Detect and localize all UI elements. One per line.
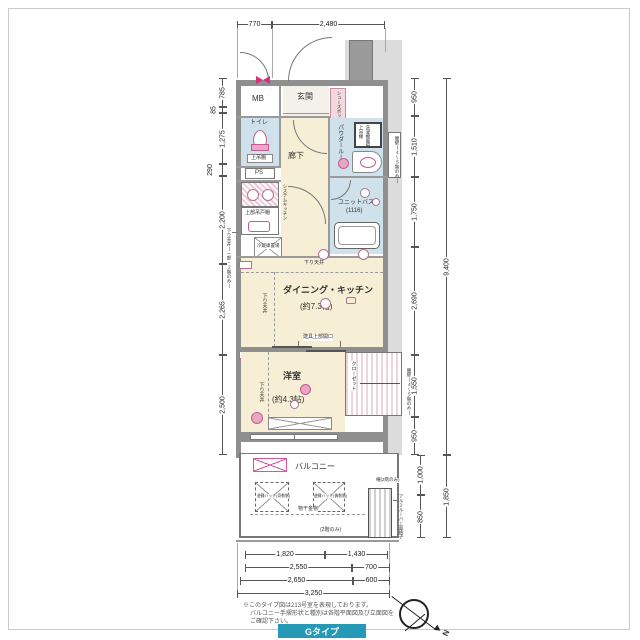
dk-label: ダイニング・キッチン <box>283 286 373 296</box>
dim-bottom-2650: 2,650 <box>240 580 353 581</box>
bath-fixture-icon <box>360 188 370 198</box>
balcony-label: バルコニー <box>295 463 335 472</box>
dim-right-1000: 1,000 <box>420 455 421 495</box>
dim-right-1850: 1,850 <box>446 455 447 538</box>
window-lower-mid <box>294 434 295 440</box>
escape-hatch-left-label: 避難ハッチ(奇数階) <box>257 494 290 498</box>
dim-top-2480: 2,480 <box>272 24 385 25</box>
dim-bottom-2550: 2,550 <box>245 567 352 568</box>
drying-label: 物干金物 <box>298 507 318 513</box>
pillar <box>349 40 373 82</box>
ceiling-light-icon <box>318 249 329 260</box>
room-mb: MB <box>241 86 281 116</box>
wash-basin <box>352 151 382 173</box>
closet: クローゼット <box>345 352 402 416</box>
dim-bottom-600: 600 <box>353 580 390 581</box>
dk-light-icon <box>320 298 331 309</box>
toilet-tank-icon <box>251 144 269 151</box>
dim-right-1550: 1,550 <box>414 355 415 417</box>
washer-label: 洗濯機置場 <box>365 125 370 146</box>
lowered-ceiling-part-note: 下り天井(一部・2階のみ) <box>226 228 231 288</box>
window-counter <box>268 417 332 430</box>
floorplan-canvas: MB 玄関 シューズボックス トイレ 上吊棚 PS 廊下 パウダールーム 上吊棚… <box>0 0 640 640</box>
washer-box: 上吊棚 洗濯機置場 <box>354 122 382 148</box>
dim-top-770: 770 <box>237 24 272 25</box>
room-toilet: トイレ 上吊棚 <box>241 118 279 166</box>
bathtub <box>334 222 380 249</box>
washer-shelf-label: 上吊棚 <box>358 125 363 146</box>
bedroom-fixture-icon <box>290 400 299 409</box>
genkan-label: 玄関 <box>297 93 313 102</box>
waist-wall-note-2: 腰壁(4〜5階のみ) <box>406 368 411 415</box>
ceiling-light-icon <box>358 249 369 260</box>
dim-right-950b: 950 <box>414 417 415 455</box>
room-genkan: 玄関 <box>283 86 329 116</box>
dim-right-2690: 2,690 <box>414 247 415 355</box>
dk-lowered-ceiling-top: 下り天井 <box>304 261 324 267</box>
hall-label: 廊下 <box>288 152 304 161</box>
escape-hatch-right-label: 避難ハッチ(偶数階) <box>314 494 347 498</box>
cupboard-label: 上部吊戸棚 <box>245 211 270 217</box>
escape-hatch-left: 避難ハッチ(奇数階) <box>255 482 289 512</box>
bath-size-label: (1116) <box>346 208 362 215</box>
fence2f-label: 柵(2階のみ) <box>376 478 400 483</box>
dim-bottom-1820: 1,820 <box>245 554 325 555</box>
louver-label: アルミルーバー面格子 <box>398 494 403 539</box>
dim-right-1750: 1,750 <box>414 177 415 247</box>
dim-left-2200: 2,200 <box>222 176 223 264</box>
opening-label: 建具上部開口 <box>303 335 333 341</box>
dim-left-2265: 2,265 <box>222 264 223 355</box>
mb-label: MB <box>252 95 264 104</box>
type-g-button[interactable]: Gタイプ <box>278 624 366 638</box>
only2f-label: (2階のみ) <box>320 528 341 534</box>
dim-left-785: 785 <box>222 78 223 107</box>
waist-wall-note-1: 腰壁(4〜5階のみ) <box>394 136 399 183</box>
kitchen-sink-unit: 上部吊戸棚 <box>241 207 279 235</box>
dim-right-1510: 1,510 <box>414 116 415 177</box>
bedroom-size-label: (約4.3帖) <box>272 396 304 405</box>
compass: N <box>388 592 452 640</box>
hanger-pipe <box>360 383 400 384</box>
bath-fixture-icon <box>372 198 380 206</box>
bedroom-light-icon <box>300 384 311 395</box>
closet-label: クローゼット <box>350 361 356 391</box>
dk-lowered-ceiling-left: 下り天井 <box>261 293 267 313</box>
dim-right-9400: 9,400 <box>446 78 447 455</box>
dim-right-850: 850 <box>420 495 421 538</box>
sink-bowl-icon <box>338 158 349 169</box>
dim-left-2500: 2,500 <box>222 355 223 455</box>
mb-door-icon <box>256 76 270 84</box>
bedroom-lowered-ceiling: 下り天井 <box>258 382 264 402</box>
meter-box-small <box>239 261 252 269</box>
dim-right-950a: 950 <box>414 78 415 116</box>
dk-fixture-icon <box>346 297 356 304</box>
dim-bottom-1430: 1,430 <box>325 554 388 555</box>
dim-bottom-700: 700 <box>352 567 390 568</box>
water-heater-box <box>253 458 287 472</box>
fridge-label: 冷蔵庫置場 <box>257 244 280 249</box>
dim-left-1275: 1,275 <box>222 113 223 164</box>
detector-icon <box>251 412 263 424</box>
room-powder: パウダールーム 上吊棚 洗濯機置場 <box>330 118 383 176</box>
ac-step <box>368 488 392 538</box>
bath-label: ユニットバス <box>338 200 374 207</box>
stove <box>241 182 279 207</box>
dim-bottom-3250: 3,250 <box>237 593 390 594</box>
dim-left-290: 290 <box>222 164 223 176</box>
bedroom-label: 洋室 <box>283 372 301 382</box>
kitchen-label: システムキッチン <box>282 184 287 220</box>
compass-n-label: N <box>440 628 450 637</box>
ps-label: PS <box>255 170 263 177</box>
ps-box: PS <box>245 168 275 179</box>
toilet-label: トイレ <box>250 120 268 127</box>
toilet-shelf-label: 上吊棚 <box>251 156 266 162</box>
